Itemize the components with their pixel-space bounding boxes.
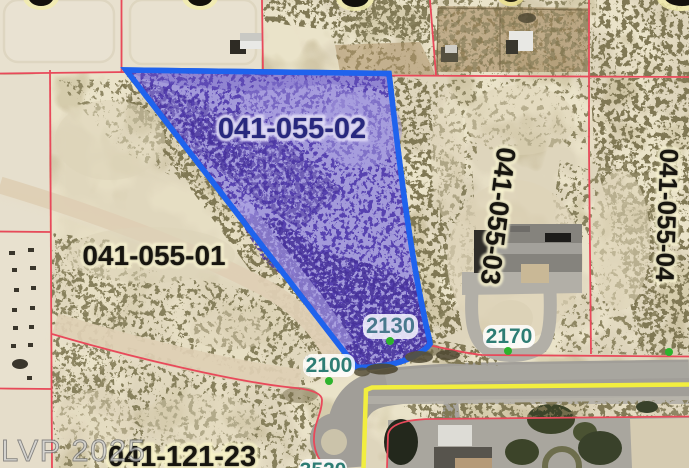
svg-text:2130: 2130: [366, 313, 415, 338]
svg-text:2100: 2100: [306, 354, 353, 377]
svg-text:LVP 2025: LVP 2025: [1, 433, 146, 468]
svg-text:041-055-04: 041-055-04: [650, 148, 685, 283]
svg-text:3520: 3520: [300, 459, 347, 468]
svg-text:041-055-02: 041-055-02: [218, 113, 366, 145]
svg-text:041-055-01: 041-055-01: [82, 240, 225, 271]
svg-text:2170: 2170: [486, 325, 533, 348]
